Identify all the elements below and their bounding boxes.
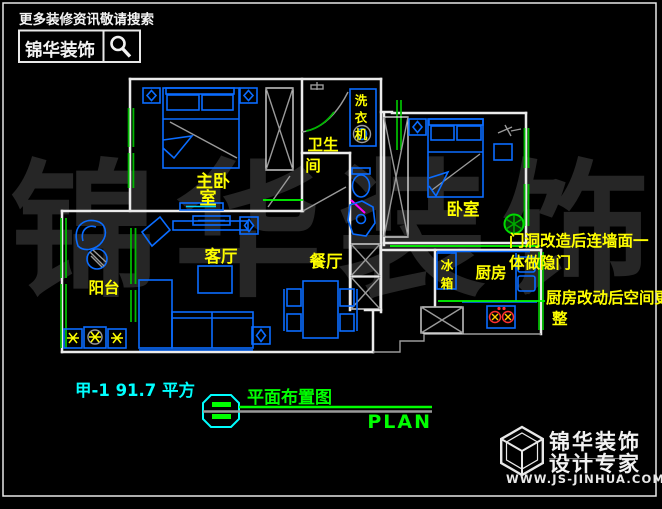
burner-flame-icon (492, 314, 511, 320)
basin (348, 201, 375, 236)
room-label-dining: 餐厅 (310, 251, 344, 271)
promo-text: 更多装修资讯敬请搜索 (19, 11, 154, 28)
chair (287, 314, 301, 331)
door-swing (268, 176, 290, 207)
dining-table (303, 281, 338, 338)
chair (287, 289, 301, 306)
logo-brand: 锦华装饰 (549, 430, 641, 454)
bathroom-fixtures (302, 82, 380, 309)
room-label-living: 客厅 (204, 246, 239, 266)
screenshot-root: 锦华装饰 更多装修资讯敬请搜索 锦华装饰 (0, 0, 662, 509)
cube-logo-icon (501, 427, 543, 475)
note-kitchen-1: 厨房改动后空间更 (546, 288, 662, 307)
unit-area-text: 甲-1 91.7 平方 (75, 380, 195, 400)
fridge-label-char: 箱 (441, 276, 454, 291)
chair (340, 289, 354, 306)
laundry-label-char: 衣 (355, 110, 368, 125)
drawing-title-en: PLAN (367, 411, 432, 433)
note-hidden-door-2: 体做隐门 (509, 253, 571, 272)
ornament-icon (147, 91, 156, 101)
chair (340, 314, 354, 331)
bedroom-furniture (384, 117, 540, 246)
coffee-table (198, 266, 232, 293)
ornament-icon (257, 330, 266, 342)
room-label-bath-2: 间 (305, 156, 321, 175)
brand-text: 锦华装饰 (25, 40, 95, 61)
plant-icon (67, 332, 123, 343)
living-room-furniture (139, 216, 270, 350)
room-label-master-2: 室 (200, 188, 217, 209)
header-banner: 更多装修资讯敬请搜索 锦华装饰 (19, 11, 154, 62)
floor-plan-canvas: 更多装修资讯敬请搜索 锦华装饰 (0, 0, 662, 509)
laundry-label-char: 洗 (355, 93, 368, 108)
dining-furniture (284, 281, 357, 338)
shower-curtain (302, 92, 348, 132)
drawing-title: 平面布置图 (247, 387, 332, 408)
phone-icon (498, 125, 521, 136)
door-swing (303, 187, 346, 211)
note-kitchen-2: 整 (551, 309, 568, 328)
sofa-chaise (139, 280, 172, 348)
stepped-outline (373, 334, 541, 352)
search-icon (112, 37, 131, 57)
company-logo: 锦华装饰 设计专家 WWW.JS-JINHUA.COM (501, 427, 662, 486)
fridge-label-char: 冰 (441, 258, 454, 273)
note-hidden-door-1: 门洞改造后连墙面一 (509, 231, 649, 250)
ornament-icon (413, 122, 422, 133)
room-label-bath-1: 卫生 (307, 135, 339, 154)
logo-url: WWW.JS-JINHUA.COM (506, 472, 662, 486)
room-label-bedroom: 卧室 (447, 199, 480, 219)
nightstand (494, 144, 512, 160)
ornament-icon (244, 91, 253, 101)
laundry-label-char: 机 (355, 127, 368, 142)
plant-icon (505, 215, 524, 234)
toilet (353, 175, 370, 197)
corner-cabinet (142, 217, 170, 246)
title-block: 甲-1 91.7 平方 平面布置图 PLAN (75, 380, 432, 433)
annotations: 门洞改造后连墙面一 体做隐门 厨房改动后空间更 整 (509, 231, 662, 328)
room-label-kitchen: 厨房 (475, 263, 506, 282)
room-label-balcony: 阳台 (88, 278, 119, 297)
sink (518, 276, 535, 291)
lounge-chair (76, 220, 105, 249)
